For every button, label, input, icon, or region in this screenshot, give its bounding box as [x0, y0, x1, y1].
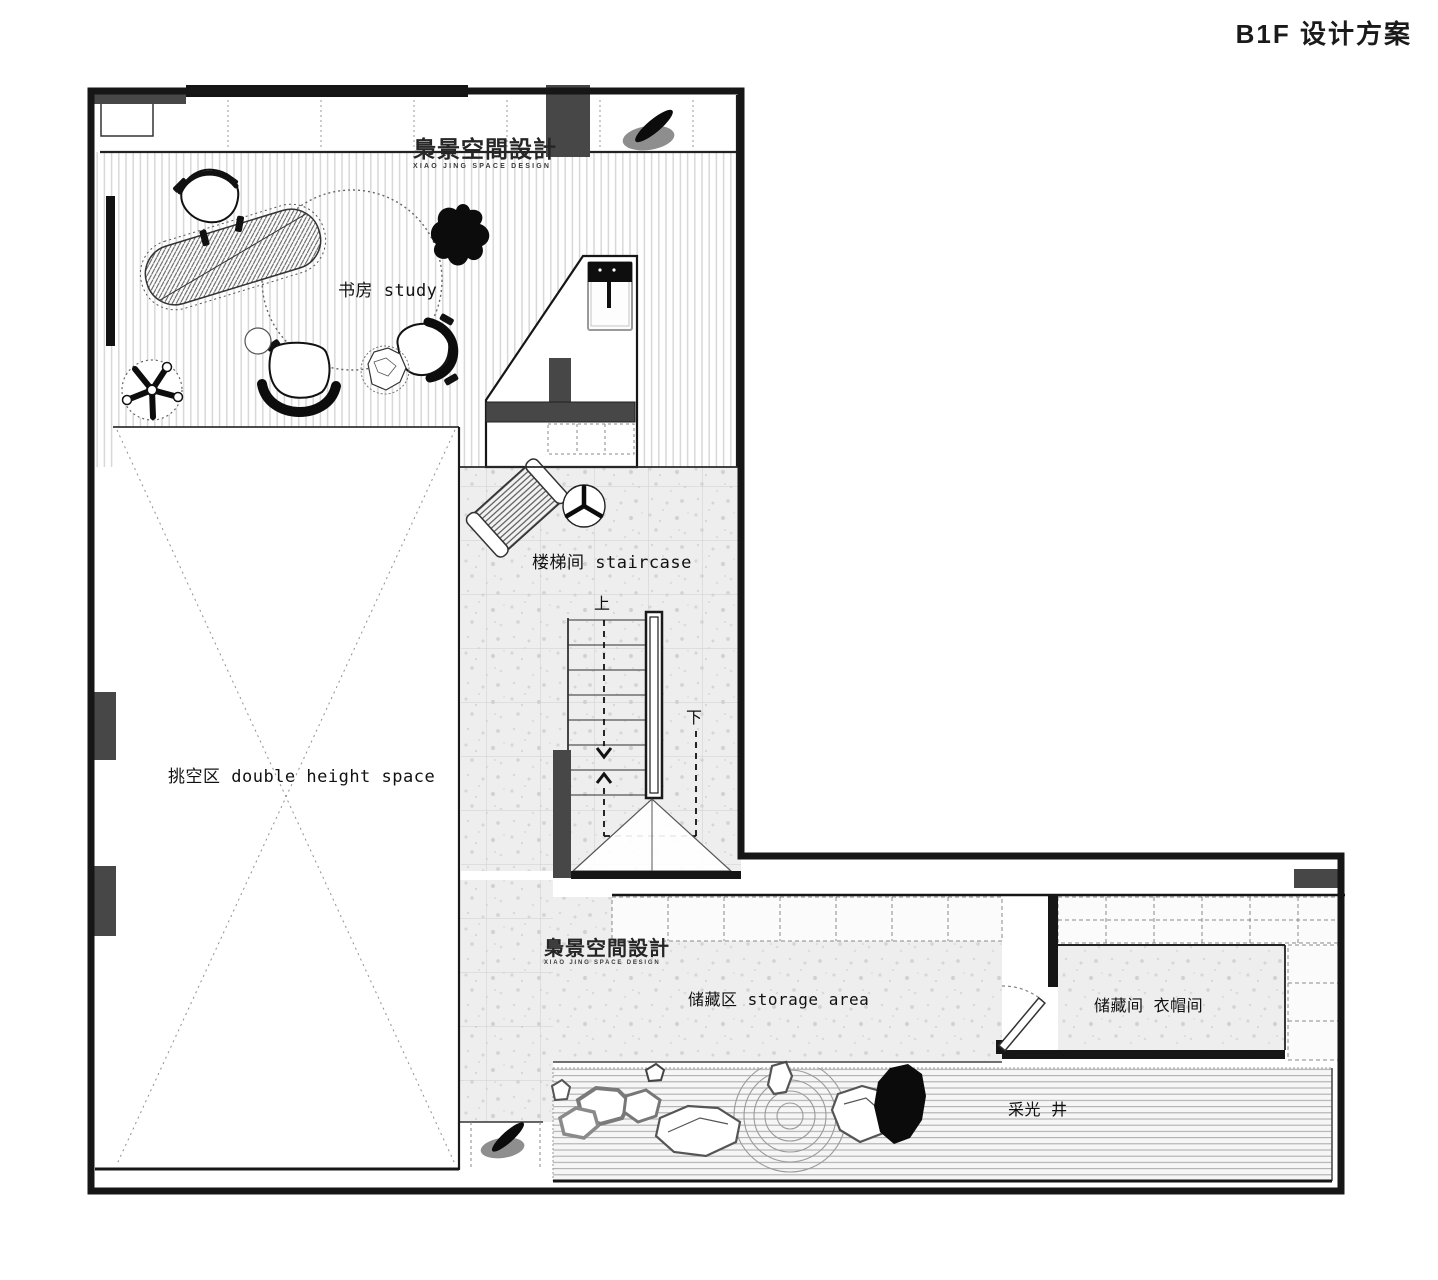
room-label-staircase: 楼梯间 staircase: [532, 548, 692, 573]
side-table: [563, 485, 605, 527]
storage-room-door: [999, 986, 1045, 1051]
floor-plan-drawing: [0, 0, 1438, 1280]
wall-gray-left-1: [91, 692, 116, 760]
window-left: [106, 196, 115, 346]
bear-rug: [431, 204, 489, 266]
watermark-top: 梟景空間設計 XIAO JING SPACE DESIGN: [413, 138, 557, 170]
room-label-study: 书房 study: [338, 276, 437, 301]
cabinet-col-storage-room: [1288, 945, 1341, 1060]
page-title: B1F 设计方案: [1236, 14, 1412, 51]
room-label-storage-area: 储藏区 storage area: [688, 986, 869, 1010]
wall-gray-left-2: [91, 866, 116, 936]
room-label-storage-room: 储藏间 衣帽间: [1094, 992, 1203, 1016]
double-height-area: [113, 427, 459, 1169]
wall-door-jamb-top: [1048, 895, 1058, 987]
watermark-en: XIAO JING SPACE DESIGN: [544, 960, 670, 966]
stair-up-label: 上: [594, 590, 611, 614]
floor-plan-page: B1F 设计方案 梟景空間設計 XIAO JING SPACE DESIGN 梟…: [0, 0, 1438, 1280]
watermark-cn: 梟景空間設計: [544, 938, 670, 958]
door-leaf: [999, 998, 1045, 1051]
room-label-double-height: 挑空区 double height space: [168, 762, 435, 787]
cabinet-row-storage-area: [612, 897, 1002, 941]
stair-stringer: [646, 612, 662, 798]
room-label-light-well: 采光 井: [1008, 1096, 1068, 1120]
wall-notch: [101, 104, 153, 136]
t-wall-bar: [486, 402, 635, 422]
t-wall-stem: [549, 358, 571, 404]
stair-down-label: 下: [686, 704, 703, 728]
small-stool: [245, 328, 271, 354]
wall-pilaster-stair: [553, 750, 571, 878]
watermark-bottom: 梟景空間設計 XIAO JING SPACE DESIGN: [544, 938, 670, 966]
watermark-cn: 梟景空間設計: [413, 138, 557, 161]
watermark-en: XIAO JING SPACE DESIGN: [413, 163, 557, 170]
washbasin: [588, 262, 632, 330]
door-swing-arc: [1002, 986, 1042, 1000]
wall-gray-right-wing: [1294, 869, 1343, 888]
